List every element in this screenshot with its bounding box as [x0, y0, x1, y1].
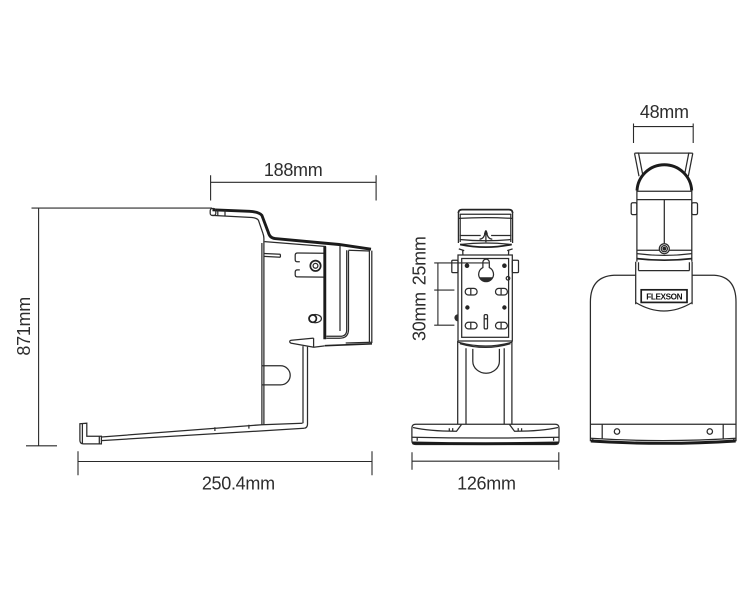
svg-text:188mm: 188mm — [264, 160, 323, 180]
svg-text:48mm: 48mm — [640, 102, 689, 122]
svg-text:126mm: 126mm — [457, 474, 516, 494]
svg-text:250.4mm: 250.4mm — [202, 474, 275, 494]
svg-text:FLEXSON: FLEXSON — [646, 293, 682, 302]
svg-text:30mm: 30mm — [409, 292, 429, 341]
svg-text:871mm: 871mm — [14, 297, 34, 356]
svg-text:25mm: 25mm — [409, 236, 429, 285]
